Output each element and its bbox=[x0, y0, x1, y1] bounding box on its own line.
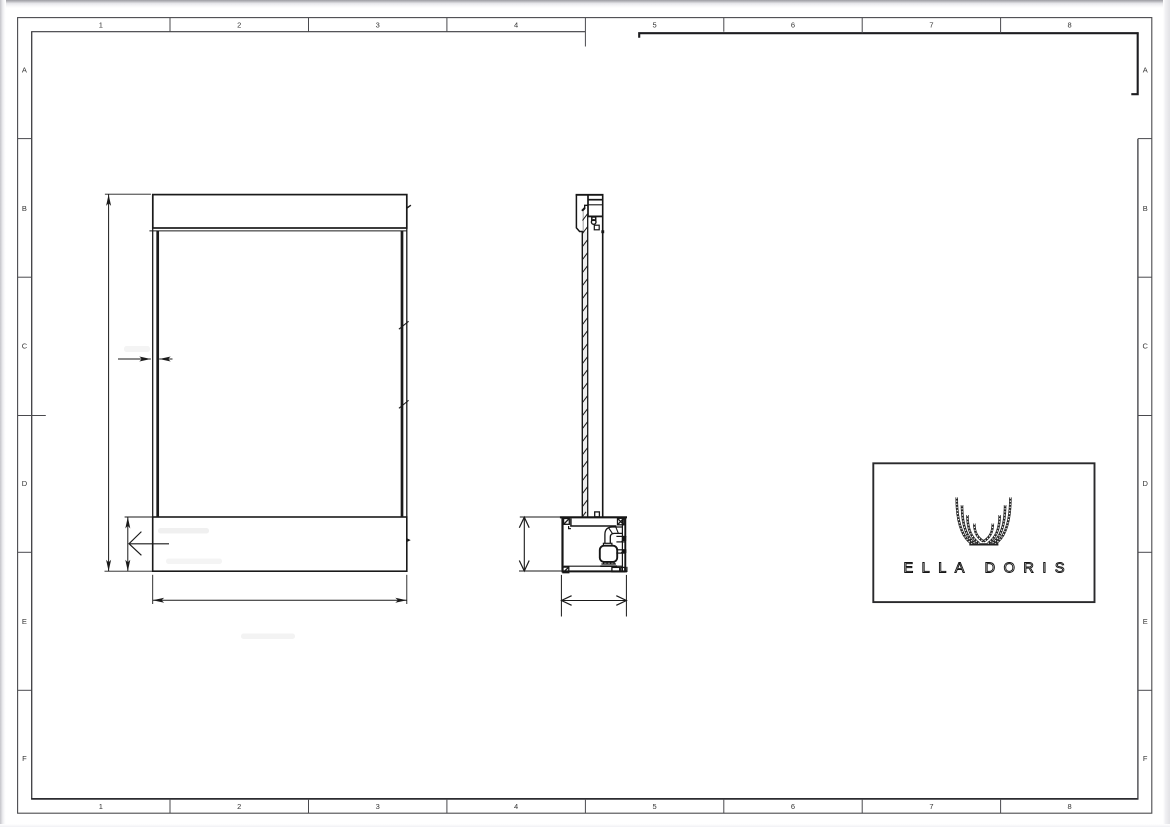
svg-text:2: 2 bbox=[237, 20, 241, 29]
svg-text:C: C bbox=[22, 341, 28, 350]
svg-text:6: 6 bbox=[791, 20, 795, 29]
svg-text:E: E bbox=[1143, 617, 1148, 626]
svg-text:7: 7 bbox=[929, 802, 933, 811]
svg-text:E: E bbox=[22, 617, 27, 626]
svg-text:A: A bbox=[1143, 66, 1148, 75]
svg-text:3: 3 bbox=[376, 802, 380, 811]
svg-text:5: 5 bbox=[653, 20, 657, 29]
svg-text:F: F bbox=[22, 754, 27, 763]
svg-text:F: F bbox=[1143, 754, 1148, 763]
svg-text:5: 5 bbox=[653, 802, 657, 811]
svg-text:8: 8 bbox=[1068, 20, 1072, 29]
svg-text:4: 4 bbox=[514, 802, 518, 811]
svg-text:A: A bbox=[22, 66, 27, 75]
svg-text:8: 8 bbox=[1068, 802, 1072, 811]
svg-text:3: 3 bbox=[376, 20, 380, 29]
svg-text:ELLA DORIS: ELLA DORIS bbox=[903, 560, 1073, 576]
svg-text:B: B bbox=[1143, 204, 1148, 213]
svg-text:1: 1 bbox=[99, 20, 103, 29]
svg-text:2: 2 bbox=[237, 802, 241, 811]
svg-text:B: B bbox=[22, 204, 27, 213]
svg-text:6: 6 bbox=[791, 802, 795, 811]
svg-text:1: 1 bbox=[99, 802, 103, 811]
svg-text:7: 7 bbox=[929, 20, 933, 29]
svg-text:D: D bbox=[1142, 479, 1148, 488]
svg-text:4: 4 bbox=[514, 20, 518, 29]
svg-text:C: C bbox=[1142, 341, 1148, 350]
svg-text:D: D bbox=[22, 479, 28, 488]
